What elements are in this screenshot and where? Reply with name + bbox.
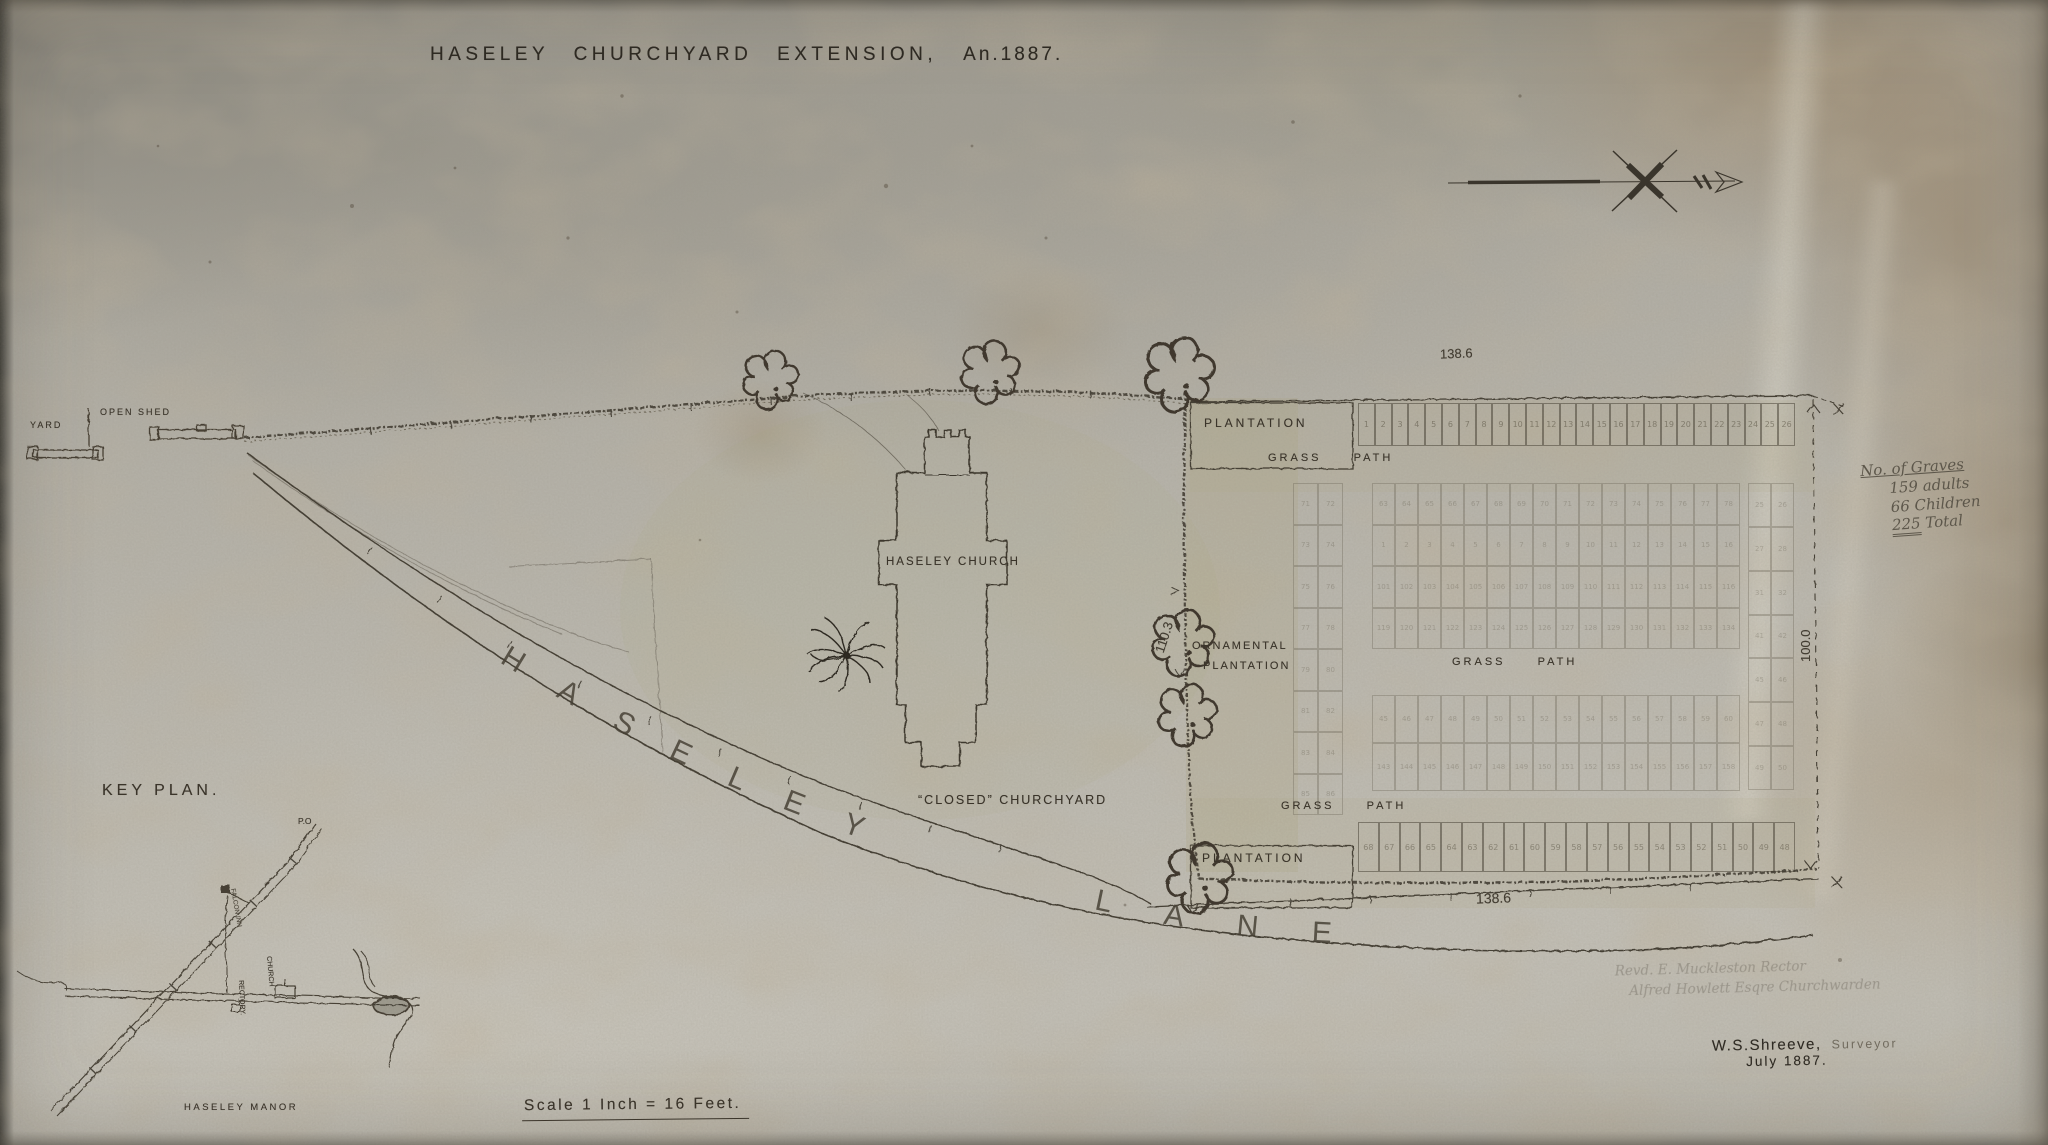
grave-plot-cell: 134 — [1717, 608, 1740, 650]
scale-text: Scale 1 Inch = 16 Feet. — [522, 1095, 750, 1121]
grave-plot-cell: 47 — [1748, 702, 1771, 746]
grave-plot-block-upper-block: 6364656667686970717273747576777812345678… — [1372, 483, 1740, 649]
grave-plot-cell: 25 — [1761, 403, 1778, 446]
grave-plot-cell: 46 — [1771, 658, 1794, 702]
grave-plot-cell: 116 — [1717, 566, 1740, 608]
grave-plot-cell: 104 — [1441, 566, 1464, 608]
grave-plot-cell: 49 — [1464, 695, 1487, 743]
grave-plot-cell: 1 — [1372, 525, 1395, 567]
grave-plot-cell: 127 — [1556, 608, 1579, 650]
grave-plot-cell: 7 — [1510, 525, 1533, 567]
surveyor-date: July 1887. — [1746, 1051, 1898, 1069]
grave-plot-cell: 8 — [1533, 525, 1556, 567]
key-plan-po-label: P.O — [298, 816, 312, 826]
page-title: HASELEY CHURCHYARD EXTENSION,An.1887. — [430, 44, 1063, 66]
grave-plot-cell: 54 — [1649, 822, 1670, 872]
grave-plot-cell: 31 — [1748, 571, 1771, 615]
grave-plot-cell: 102 — [1395, 566, 1418, 608]
grave-plot-cell: 14 — [1576, 403, 1593, 446]
grave-plot-cell: 122 — [1441, 608, 1464, 650]
plan-sheet: HASELEY LANE 123456789101112131415161718… — [0, 0, 2048, 1145]
grave-plot-cell: 113 — [1648, 566, 1671, 608]
grave-plot-cell: 11 — [1526, 403, 1543, 446]
grave-plot-cell: 56 — [1625, 695, 1648, 743]
grave-plot-cell: 56 — [1608, 822, 1629, 872]
grave-plot-cell: 62 — [1483, 822, 1504, 872]
grave-plot-cell: 157 — [1694, 743, 1717, 791]
grave-plot-cell: 123 — [1464, 608, 1487, 650]
grave-plot-block-bottom-row: 6867666564636261605958575655545352515049… — [1358, 822, 1795, 872]
grave-plot-cell: 2 — [1375, 403, 1392, 446]
grave-plot-cell: 63 — [1372, 483, 1395, 525]
grave-plot-cell: 67 — [1379, 822, 1400, 872]
grave-plot-cell: 84 — [1318, 732, 1343, 774]
grave-plot-cell: 76 — [1318, 566, 1343, 608]
dimension-top: 138.6 — [1440, 345, 1473, 361]
grave-plot-cell: 50 — [1771, 746, 1794, 790]
grave-plot-cell: 54 — [1579, 695, 1602, 743]
grave-plot-block-lower-block: 4546474849505152535455565758596014314414… — [1372, 695, 1740, 791]
grave-plot-cell: 42 — [1771, 615, 1794, 659]
closed-churchyard-label: “CLOSED” CHURCHYARD — [918, 793, 1107, 807]
grave-plot-cell: 48 — [1771, 702, 1794, 746]
grave-plot-cell: 1 — [1358, 403, 1375, 446]
grave-plot-cell: 10 — [1509, 403, 1526, 446]
grave-plot-cell: 73 — [1293, 525, 1318, 567]
grave-plot-block-right-pairs: 2526272831324142454647484950 — [1748, 483, 1794, 790]
grave-plot-cell: 2 — [1395, 525, 1418, 567]
grave-plot-cell: 130 — [1625, 608, 1648, 650]
grave-plot-cell: 126 — [1533, 608, 1556, 650]
grave-plot-cell: 23 — [1728, 403, 1745, 446]
grave-plot-cell: 52 — [1691, 822, 1712, 872]
grave-plot-cell: 153 — [1602, 743, 1625, 791]
grave-plot-cell: 47 — [1418, 695, 1441, 743]
grave-plot-cell: 48 — [1774, 822, 1795, 872]
grave-plot-cell: 16 — [1610, 403, 1627, 446]
grave-plot-cell: 148 — [1487, 743, 1510, 791]
grave-plot-cell: 124 — [1487, 608, 1510, 650]
grave-plot-cell: 15 — [1593, 403, 1610, 446]
grave-plot-cell: 112 — [1625, 566, 1648, 608]
grave-plot-cell: 64 — [1395, 483, 1418, 525]
grave-plot-cell: 107 — [1510, 566, 1533, 608]
grave-plot-cell: 11 — [1602, 525, 1625, 567]
grave-plot-cell: 5 — [1464, 525, 1487, 567]
grave-plot-cell: 21 — [1694, 403, 1711, 446]
grave-plot-cell: 6 — [1487, 525, 1510, 567]
grave-plot-cell: 65 — [1418, 483, 1441, 525]
grave-plot-cell: 151 — [1556, 743, 1579, 791]
grave-plot-cell: 77 — [1694, 483, 1717, 525]
grave-plot-cell: 150 — [1533, 743, 1556, 791]
grave-plot-cell: 70 — [1533, 483, 1556, 525]
grave-plot-cell: 68 — [1358, 822, 1379, 872]
grave-plot-block-left-pairs: 71727374757677787980818283848586 — [1293, 483, 1343, 815]
grave-plot-cell: 72 — [1579, 483, 1602, 525]
grave-plot-cell: 53 — [1556, 695, 1579, 743]
grave-plot-cell: 64 — [1441, 822, 1462, 872]
grave-plot-cell: 25 — [1748, 483, 1771, 527]
grave-plot-cell: 51 — [1712, 822, 1733, 872]
grave-plot-cell: 50 — [1487, 695, 1510, 743]
grave-plot-cell: 3 — [1392, 403, 1409, 446]
grave-plot-cell: 75 — [1648, 483, 1671, 525]
grave-plot-cell: 68 — [1487, 483, 1510, 525]
grave-plot-cell: 9 — [1492, 403, 1509, 446]
ornamental-label-2: PLANTATION — [1203, 660, 1290, 672]
grave-plot-cell: 158 — [1717, 743, 1740, 791]
grave-plot-cell: 55 — [1602, 695, 1625, 743]
grave-plot-cell: 20 — [1677, 403, 1694, 446]
grave-plot-cell: 9 — [1556, 525, 1579, 567]
grave-plot-cell: 65 — [1420, 822, 1441, 872]
grave-plot-cell: 156 — [1671, 743, 1694, 791]
yard-label: YARD — [30, 420, 62, 430]
grave-plot-cell: 76 — [1671, 483, 1694, 525]
grave-plot-cell: 26 — [1771, 483, 1794, 527]
grave-plot-cell: 152 — [1579, 743, 1602, 791]
grave-plot-cell: 19 — [1661, 403, 1678, 446]
surveyor-name: W.S.Shreeve, — [1712, 1036, 1822, 1055]
grave-plot-cell: 12 — [1543, 403, 1560, 446]
grave-plot-cell: 143 — [1372, 743, 1395, 791]
grave-plot-cell: 79 — [1293, 649, 1318, 691]
grave-plot-cell: 60 — [1717, 695, 1740, 743]
dimension-right: 100.0 — [1798, 629, 1813, 662]
surveyor-signature: W.S.Shreeve,Surveyor July 1887. — [1712, 1034, 1898, 1069]
grave-plot-cell: 74 — [1625, 483, 1648, 525]
grave-plot-cell: 73 — [1602, 483, 1625, 525]
grave-plot-cell: 60 — [1524, 822, 1545, 872]
grave-plot-cell: 119 — [1372, 608, 1395, 650]
grave-plot-cell: 14 — [1671, 525, 1694, 567]
grave-plot-cell: 129 — [1602, 608, 1625, 650]
grave-plot-cell: 121 — [1418, 608, 1441, 650]
grave-plot-cell: 26 — [1778, 403, 1795, 446]
grave-plot-cell: 111 — [1602, 566, 1625, 608]
grave-plot-cell: 75 — [1293, 566, 1318, 608]
grave-plot-cell: 41 — [1748, 615, 1771, 659]
grave-count-notes: No. of Graves 159 adults 66 Children 225… — [1860, 454, 1983, 537]
grave-plot-cell: 147 — [1464, 743, 1487, 791]
grave-plot-cell: 81 — [1293, 691, 1318, 733]
grave-plot-cell: 59 — [1545, 822, 1566, 872]
grave-plot-cell: 108 — [1533, 566, 1556, 608]
grave-plot-cell: 18 — [1644, 403, 1661, 446]
grave-plot-cell: 128 — [1579, 608, 1602, 650]
grave-plot-cell: 106 — [1487, 566, 1510, 608]
grave-plot-cell: 15 — [1694, 525, 1717, 567]
grave-plot-cell: 3 — [1418, 525, 1441, 567]
grave-plot-cell: 12 — [1625, 525, 1648, 567]
grave-plot-cell: 149 — [1510, 743, 1533, 791]
grave-plot-cell: 27 — [1748, 527, 1771, 571]
grave-plot-cell: 120 — [1395, 608, 1418, 650]
grave-plot-cell: 10 — [1579, 525, 1602, 567]
grave-plot-cell: 59 — [1694, 695, 1717, 743]
grave-plot-cell: 145 — [1418, 743, 1441, 791]
grass-path-top-label: GRASS PATH — [1268, 452, 1393, 464]
grave-plot-cell: 110 — [1579, 566, 1602, 608]
grave-plot-cell: 46 — [1395, 695, 1418, 743]
grave-plot-cell: 24 — [1745, 403, 1762, 446]
grave-plot-cell: 133 — [1694, 608, 1717, 650]
grave-plot-cell: 45 — [1748, 658, 1771, 702]
grave-plot-cell: 22 — [1711, 403, 1728, 446]
grave-plot-cell: 154 — [1625, 743, 1648, 791]
key-plan-manor-label: HASELEY MANOR — [184, 1102, 298, 1113]
grave-plot-cell: 66 — [1441, 483, 1464, 525]
plantation-bottom-label: PLANTATION — [1202, 851, 1306, 865]
grave-plot-cell: 57 — [1648, 695, 1671, 743]
grave-plot-cell: 45 — [1372, 695, 1395, 743]
grave-plot-cell: 115 — [1694, 566, 1717, 608]
grave-plot-cell: 71 — [1293, 483, 1318, 525]
grave-plot-cell: 52 — [1533, 695, 1556, 743]
grave-plot-cell: 109 — [1556, 566, 1579, 608]
grave-plot-cell: 32 — [1771, 571, 1794, 615]
dimension-bottom: 138.6 — [1476, 889, 1512, 906]
grave-plot-cell: 66 — [1400, 822, 1421, 872]
grave-plot-cell: 78 — [1318, 608, 1343, 650]
grave-plot-cell: 58 — [1566, 822, 1587, 872]
grave-plot-cell: 80 — [1318, 649, 1343, 691]
grave-plot-block-top-row: 1234567891011121314151617181920212223242… — [1358, 403, 1795, 446]
grave-plot-cell: 83 — [1293, 732, 1318, 774]
grave-plot-cell: 146 — [1441, 743, 1464, 791]
grave-plot-cell: 49 — [1753, 822, 1774, 872]
grave-plot-cell: 78 — [1717, 483, 1740, 525]
grave-plot-cell: 114 — [1671, 566, 1694, 608]
plantation-top-label: PLANTATION — [1204, 416, 1308, 430]
grave-plot-cell: 74 — [1318, 525, 1343, 567]
grave-plot-cell: 55 — [1629, 822, 1650, 872]
grave-plot-cell: 103 — [1418, 566, 1441, 608]
key-plan-title: KEY PLAN. — [102, 782, 220, 800]
grave-plot-cell: 58 — [1671, 695, 1694, 743]
grave-plot-cell: 61 — [1504, 822, 1525, 872]
grave-plot-cell: 101 — [1372, 566, 1395, 608]
grave-plot-cell: 69 — [1510, 483, 1533, 525]
grave-plot-cell: 57 — [1587, 822, 1608, 872]
grass-path-bottom-label: GRASS PATH — [1281, 800, 1406, 812]
grave-plot-cell: 6 — [1442, 403, 1459, 446]
open-shed-label: OPEN SHED — [100, 407, 171, 417]
grave-plot-cell: 7 — [1459, 403, 1476, 446]
grave-plot-cell: 49 — [1748, 746, 1771, 790]
grave-plot-cell: 13 — [1560, 403, 1577, 446]
grave-plot-cell: 82 — [1318, 691, 1343, 733]
grave-plot-cell: 13 — [1648, 525, 1671, 567]
grave-plot-cell: 50 — [1733, 822, 1754, 872]
grave-plot-cell: 77 — [1293, 608, 1318, 650]
grass-path-mid-label: GRASS PATH — [1452, 656, 1577, 668]
officials-note: Revd. E. Muckleston Rector Alfred Howlet… — [1615, 955, 1881, 1002]
grave-plot-cell: 67 — [1464, 483, 1487, 525]
haseley-church-label: HASELEY CHURCH — [886, 556, 1020, 568]
ornamental-label-1: ORNAMENTAL — [1192, 640, 1288, 652]
surveyor-role: Surveyor — [1831, 1036, 1897, 1051]
grave-plot-cell: 4 — [1441, 525, 1464, 567]
grave-plot-cell: 72 — [1318, 483, 1343, 525]
grave-plot-cell: 48 — [1441, 695, 1464, 743]
grave-plot-cell: 16 — [1717, 525, 1740, 567]
grave-plot-cell: 4 — [1408, 403, 1425, 446]
grave-plot-cell: 71 — [1556, 483, 1579, 525]
grave-plot-cell: 28 — [1771, 527, 1794, 571]
grave-plot-cell: 155 — [1648, 743, 1671, 791]
grave-plot-cell: 5 — [1425, 403, 1442, 446]
grave-plot-cell: 53 — [1670, 822, 1691, 872]
grave-plot-cell: 132 — [1671, 608, 1694, 650]
grave-plot-cell: 51 — [1510, 695, 1533, 743]
grave-plot-cell: 17 — [1627, 403, 1644, 446]
grave-plot-cell: 125 — [1510, 608, 1533, 650]
grave-plot-cell: 63 — [1462, 822, 1483, 872]
grave-plot-cell: 131 — [1648, 608, 1671, 650]
grave-plot-cell: 105 — [1464, 566, 1487, 608]
grave-plot-cell: 144 — [1395, 743, 1418, 791]
grave-plot-cell: 8 — [1476, 403, 1493, 446]
